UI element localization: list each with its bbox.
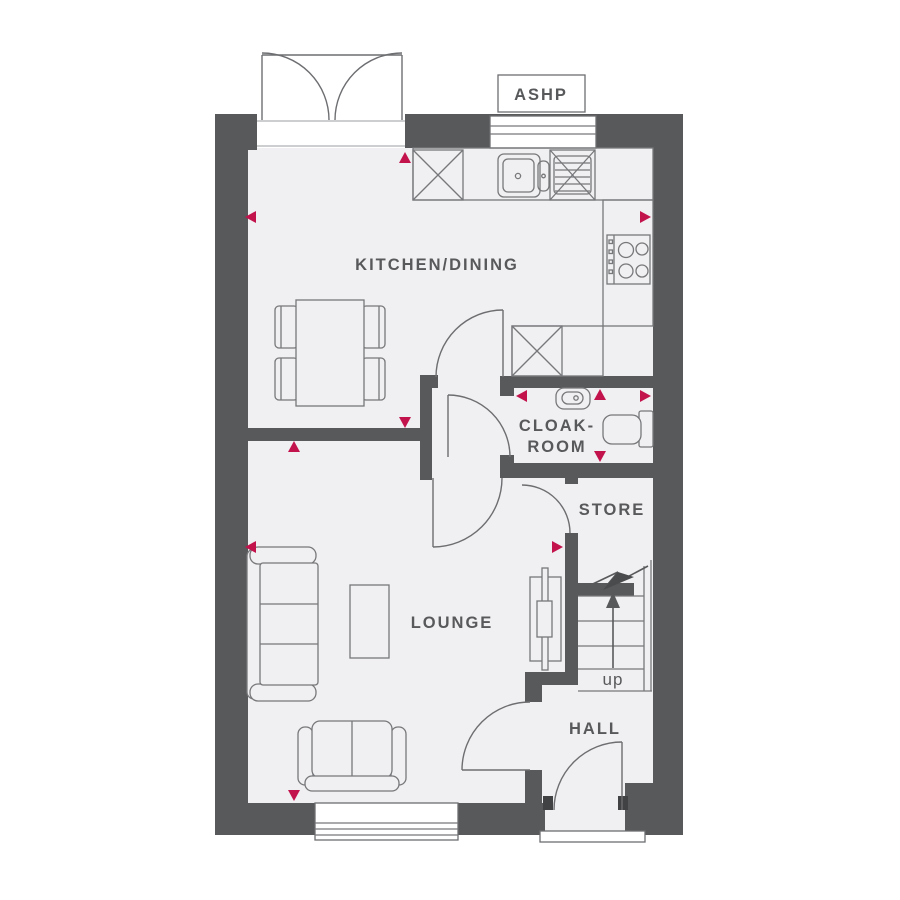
patio-door-opening [257,114,405,148]
coffee-table [350,585,389,658]
store-label: STORE [579,501,646,519]
floor-plan-page: ASHP [0,0,900,900]
sofa-small [298,721,406,791]
dining-chair [362,306,385,348]
stairs-up-label: up [603,670,624,689]
hall-label: HALL [569,720,621,738]
wash-basin-icon [556,388,590,409]
lounge-window [315,803,458,840]
tv-unit [530,568,561,670]
ashp-label: ASHP [514,86,568,104]
kitchen-window [490,116,596,148]
patio-french-doors [262,53,402,120]
dining-chair [275,306,298,348]
lounge-label: LOUNGE [411,614,494,632]
ashp-unit: ASHP [498,75,585,112]
cloakroom-label-line1: CLOAK- [519,417,595,435]
dining-chair [362,358,385,400]
cloakroom-label-line2: ROOM [527,438,586,456]
kitchen-dining-label: KITCHEN/DINING [355,256,519,274]
dining-table [296,300,364,406]
sofa-large [247,547,318,701]
toilet-icon [603,411,653,447]
dining-chair [275,358,298,400]
floor-plan-drawing: ASHP [0,0,900,900]
